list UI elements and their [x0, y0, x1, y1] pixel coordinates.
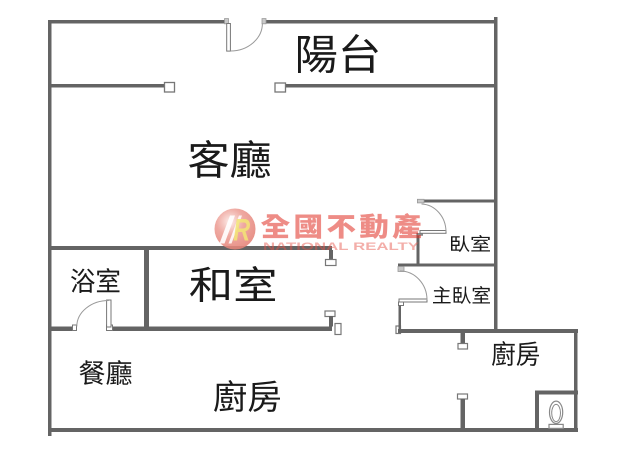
- svg-text:NATIONAL REALTY: NATIONAL REALTY: [263, 241, 420, 253]
- svg-text:R: R: [233, 212, 250, 247]
